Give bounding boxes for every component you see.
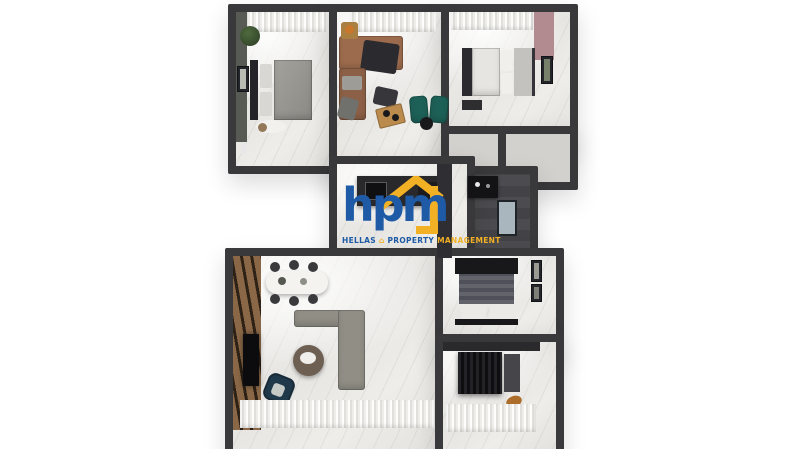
dining-chair	[289, 260, 299, 270]
door-threshold	[241, 142, 246, 154]
wall-art	[531, 284, 542, 302]
bed-frame	[455, 319, 518, 325]
logo-monogram: hpm	[342, 182, 447, 228]
bed-duvet	[274, 60, 312, 120]
floorplan-render: hpm HELLAS ⌂ PROPERTY MANAGEMENT	[0, 0, 800, 449]
closet-divider-wall	[498, 130, 506, 170]
bed-duvet	[459, 274, 514, 304]
dining-chair	[308, 262, 318, 272]
gray-sofa-side	[338, 310, 365, 390]
bed-pillow	[260, 64, 272, 88]
bed-frame	[462, 48, 472, 96]
wall-art-canvas	[534, 263, 539, 279]
dining-chair	[270, 294, 280, 304]
bed-headboard	[514, 48, 535, 96]
dining-chair	[270, 262, 280, 272]
table-decor	[278, 277, 286, 285]
tagline-word-property: PROPERTY	[387, 236, 434, 245]
logo-tagline: HELLAS ⌂ PROPERTY MANAGEMENT	[342, 236, 502, 245]
tagline-house-icon: ⌂	[379, 236, 385, 245]
dining-chair	[308, 294, 318, 304]
table-decor	[300, 278, 307, 285]
window-curtain	[240, 400, 434, 428]
window-curtain	[446, 404, 536, 432]
tray-decor	[392, 114, 399, 121]
coffee-table-tray	[300, 352, 316, 364]
bed-pillow	[461, 304, 486, 319]
nightstand	[462, 100, 482, 110]
bed-pillow	[501, 50, 513, 71]
partition-ledge	[443, 342, 540, 351]
wardrobe	[458, 352, 502, 394]
cabinet	[504, 354, 520, 392]
bed-headboard	[455, 258, 518, 274]
dining-table	[266, 271, 328, 294]
tagline-word-management: MANAGEMENT	[437, 236, 501, 245]
wall-art	[541, 56, 553, 84]
tagline-word-hellas: HELLAS	[342, 236, 376, 245]
bed-duvet	[472, 48, 500, 96]
plant	[240, 26, 260, 46]
sofa-cushion	[342, 76, 362, 90]
tv	[243, 334, 259, 386]
floor-chair-cushion	[345, 25, 354, 34]
throw-blanket	[360, 40, 400, 75]
window-curtain	[350, 12, 436, 32]
round-side-table	[420, 117, 433, 130]
tray-decor	[383, 110, 390, 117]
wall-art-canvas	[240, 69, 246, 89]
window-curtain	[451, 12, 533, 30]
pink-accent-wall	[534, 12, 554, 60]
wall-art	[237, 66, 249, 92]
hpm-watermark: hpm HELLAS ⌂ PROPERTY MANAGEMENT	[342, 182, 502, 252]
bed-headboard	[250, 60, 258, 120]
bed-pillow	[490, 304, 515, 319]
wall-art-canvas	[544, 59, 550, 81]
wall-art-canvas	[534, 287, 539, 299]
bed-pillow	[260, 92, 272, 116]
wall-art	[531, 260, 542, 282]
stool	[258, 123, 267, 132]
dining-chair	[289, 296, 299, 306]
bed-pillow	[501, 73, 513, 94]
